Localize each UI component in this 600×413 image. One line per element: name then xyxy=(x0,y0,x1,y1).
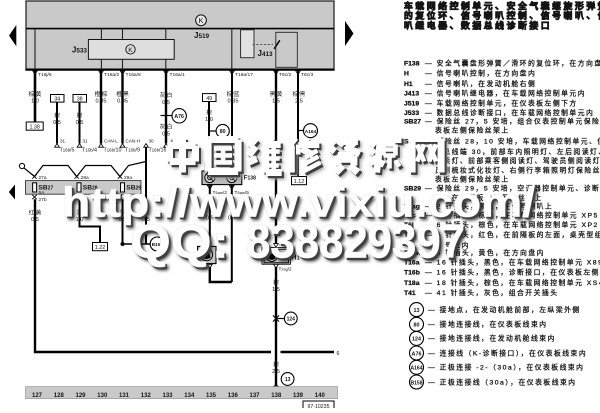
svg-text:T41: T41 xyxy=(404,290,416,297)
svg-text:T16j/6: T16j/6 xyxy=(38,72,52,78)
svg-text:红/黄: 红/黄 xyxy=(29,208,42,216)
svg-text:1.22: 1.22 xyxy=(95,245,106,251)
svg-text:A76: A76 xyxy=(412,351,422,357)
svg-text:34: 34 xyxy=(54,97,60,103)
svg-text:80: 80 xyxy=(414,323,420,329)
svg-text:J519: J519 xyxy=(194,31,210,40)
svg-text:0.35: 0.35 xyxy=(117,99,128,105)
svg-text:J533: J533 xyxy=(72,46,88,55)
svg-text:— 正极连接 -2-（30a），在仪表板线束内: — 正极连接 -2-（30a），在仪表板线束内 xyxy=(428,363,584,372)
svg-text:— 连接线（K-诊断接口），在仪表板线束内: — 连接线（K-诊断接口），在仪表板线束内 xyxy=(428,348,587,357)
svg-text:棕: 棕 xyxy=(54,111,60,119)
svg-text:131: 131 xyxy=(119,393,130,399)
svg-text:0.5: 0.5 xyxy=(31,217,39,223)
svg-text:QQ:: QQ: xyxy=(130,215,229,268)
svg-text:T6c/3: T6c/3 xyxy=(301,72,314,78)
svg-text:灰/白: 灰/白 xyxy=(160,91,173,99)
svg-text:橙/棕: 橙/棕 xyxy=(95,90,108,98)
svg-text:30: 30 xyxy=(149,139,155,144)
svg-text:13: 13 xyxy=(414,308,420,314)
svg-text:J413: J413 xyxy=(258,49,274,58)
svg-text:1.0: 1.0 xyxy=(205,117,213,123)
svg-text:B158: B158 xyxy=(411,380,423,386)
svg-text:阅读灯、前部乘客侧阅读灯、驾驶员侧阅读灯、驾驶: 阅读灯、前部乘客侧阅读灯、驾驶员侧阅读灯、驾驶 xyxy=(435,156,600,165)
svg-text:0.5: 0.5 xyxy=(76,120,84,126)
svg-text:A76: A76 xyxy=(174,114,184,120)
svg-text:124: 124 xyxy=(287,317,296,323)
svg-text:A164: A164 xyxy=(305,129,317,135)
svg-text:— 保险丝 27，5 安培，组合仪表控制单元保险丝，在仪: — 保险丝 27，5 安培，组合仪表控制单元保险丝，在仪 xyxy=(425,117,600,126)
svg-text:6: 6 xyxy=(337,351,340,357)
svg-text:的复位环、信号喇叭控制、信号喇叭、信号喇: 的复位环、信号喇叭控制、信号喇叭、信号喇 xyxy=(404,10,600,21)
svg-text:38: 38 xyxy=(77,97,83,103)
svg-text:— 18 针插头，棕色，在车载网络控制单元 XS4 号位上: — 18 针插头，棕色，在车载网络控制单元 XS4 号位上 xyxy=(425,278,600,287)
svg-text:T16a/1: T16a/1 xyxy=(170,72,186,78)
svg-text:— 数据总线诊断接口，在车载网络控制单元内: — 数据总线诊断接口，在车载网络控制单元内 xyxy=(425,108,594,117)
svg-text:T16a/2: T16a/2 xyxy=(104,72,120,78)
svg-text:棕: 棕 xyxy=(77,111,83,119)
svg-text:SB27: SB27 xyxy=(404,119,421,126)
svg-text:— 接地连接线，在仪表板线束内: — 接地连接线，在仪表板线束内 xyxy=(428,320,548,329)
svg-text:0.35: 0.35 xyxy=(96,99,107,105)
svg-text:橙/黑: 橙/黑 xyxy=(116,90,129,98)
svg-text:— 正极连接线（30a），在仪表板线束内: — 正极连接线（30a），在仪表板线束内 xyxy=(428,377,577,386)
svg-text:31: 31 xyxy=(83,139,89,144)
svg-text:器总线端 30，前部车内照明灯、左后阅读灯、右后: 器总线端 30，前部车内照明灯、左后阅读灯、右后 xyxy=(435,147,600,156)
svg-text:K: K xyxy=(198,16,203,25)
svg-text:1.5: 1.5 xyxy=(272,99,280,105)
svg-text:棕/黄: 棕/黄 xyxy=(29,90,42,98)
svg-text:5A: 5A xyxy=(39,190,46,196)
svg-text:表板左侧保险丝架上: 表板左侧保险丝架上 xyxy=(435,126,510,135)
svg-text:F138: F138 xyxy=(404,61,420,68)
svg-text:27b: 27b xyxy=(39,197,47,203)
svg-text:— 保险丝 28，10 安培，车载网络控制单元、供电继电: — 保险丝 28，10 安培，车载网络控制单元、供电继电 xyxy=(425,137,600,146)
svg-text:J413: J413 xyxy=(404,91,419,98)
svg-text:— 41 针插头，灰色，组合开关插头: — 41 针插头，灰色，组合开关插头 xyxy=(425,288,559,297)
svg-text:A164: A164 xyxy=(411,366,423,372)
svg-text:129: 129 xyxy=(75,393,86,399)
svg-text:棕: 棕 xyxy=(273,360,279,368)
svg-text:0.5: 0.5 xyxy=(162,131,170,137)
svg-text:车载网络控制单元、安全气囊螺旋形弹簧／滑环: 车载网络控制单元、安全气囊螺旋形弹簧／滑环 xyxy=(404,0,600,11)
svg-text:CAN-L: CAN-L xyxy=(104,139,118,144)
svg-text:J519: J519 xyxy=(404,101,419,108)
svg-text:2.5: 2.5 xyxy=(272,369,280,375)
svg-text:灰/白: 灰/白 xyxy=(160,123,173,131)
svg-text:— 车载网络控制单元，在仪表板左侧下方: — 车载网络控制单元，在仪表板左侧下方 xyxy=(425,99,578,108)
svg-text:— 信号喇叭控制，在方向盘内: — 信号喇叭控制，在方向盘内 xyxy=(425,69,536,78)
svg-text:128: 128 xyxy=(54,393,65,399)
svg-text:H1: H1 xyxy=(404,81,413,88)
svg-text:员侧梳妆式化妆灯、右侧行李箱照明灯保险丝，在仪: 员侧梳妆式化妆灯、右侧行李箱照明灯保险丝，在仪 xyxy=(435,166,600,175)
svg-text:138: 138 xyxy=(271,393,282,399)
svg-text:棕: 棕 xyxy=(206,108,212,116)
svg-text:49: 49 xyxy=(206,96,212,102)
svg-text:13: 13 xyxy=(285,377,291,383)
svg-text:叭继电器、数据总线诊断接口: 叭继电器、数据总线诊断接口 xyxy=(404,19,552,30)
svg-text:CAN-H: CAN-H xyxy=(126,139,141,144)
svg-text:140: 140 xyxy=(315,393,326,399)
svg-text:0.35: 0.35 xyxy=(228,99,239,105)
svg-text:H: H xyxy=(404,71,409,78)
svg-text:127: 127 xyxy=(32,393,43,399)
svg-text:— 安全气囊盘形弹簧／滑环的复位环，在方向盘下面: — 安全气囊盘形弹簧／滑环的复位环，在方向盘下面 xyxy=(425,59,600,68)
svg-text:— 接地连接线，在发动机舱线束内: — 接地连接线，在发动机舱线束内 xyxy=(428,334,556,343)
svg-text:135: 135 xyxy=(206,393,217,399)
svg-text:0.5: 0.5 xyxy=(53,120,61,126)
svg-text:T16a/17: T16a/17 xyxy=(235,72,253,78)
svg-text:97-10235: 97-10235 xyxy=(308,404,330,408)
svg-text:2.5: 2.5 xyxy=(295,99,303,105)
svg-text:— 接地点，在发动机舱前部，左纵梁外侧: — 接地点，在发动机舱前部，左纵梁外侧 xyxy=(428,305,581,314)
svg-text:139: 139 xyxy=(293,393,304,399)
svg-text:0.5: 0.5 xyxy=(162,100,170,106)
svg-text:124: 124 xyxy=(412,337,421,343)
svg-text:T16a/8: T16a/8 xyxy=(126,72,142,78)
svg-text:棕/黑: 棕/黑 xyxy=(293,90,306,98)
svg-text:— 信号喇叭，在发动机舱右侧: — 信号喇叭，在发动机舱右侧 xyxy=(425,79,536,88)
svg-text:K: K xyxy=(128,47,133,54)
svg-text:136: 136 xyxy=(228,393,239,399)
svg-text:130: 130 xyxy=(97,393,108,399)
svg-text:132: 132 xyxy=(141,393,152,399)
svg-text:31: 31 xyxy=(60,139,66,144)
svg-text:T18a: T18a xyxy=(404,280,420,287)
svg-text:133: 133 xyxy=(162,393,173,399)
svg-text:1.0: 1.0 xyxy=(31,99,39,105)
svg-text:80: 80 xyxy=(220,129,226,135)
svg-text:— 信号喇叭继电器，在车载网络控制单元内: — 信号喇叭继电器，在车载网络控制单元内 xyxy=(425,89,586,98)
svg-text:134: 134 xyxy=(184,393,195,399)
svg-text:黑/黄: 黑/黄 xyxy=(270,90,283,98)
svg-text:棕: 棕 xyxy=(273,278,279,286)
svg-text:棕/蓝: 棕/蓝 xyxy=(227,90,240,98)
svg-text:J533: J533 xyxy=(404,110,419,117)
svg-text:838829397: 838829397 xyxy=(246,215,465,268)
svg-text:1.5: 1.5 xyxy=(272,287,280,293)
svg-text:T6c/2: T6c/2 xyxy=(279,72,292,78)
svg-text:1.38: 1.38 xyxy=(29,125,40,131)
svg-text:137: 137 xyxy=(249,393,260,399)
